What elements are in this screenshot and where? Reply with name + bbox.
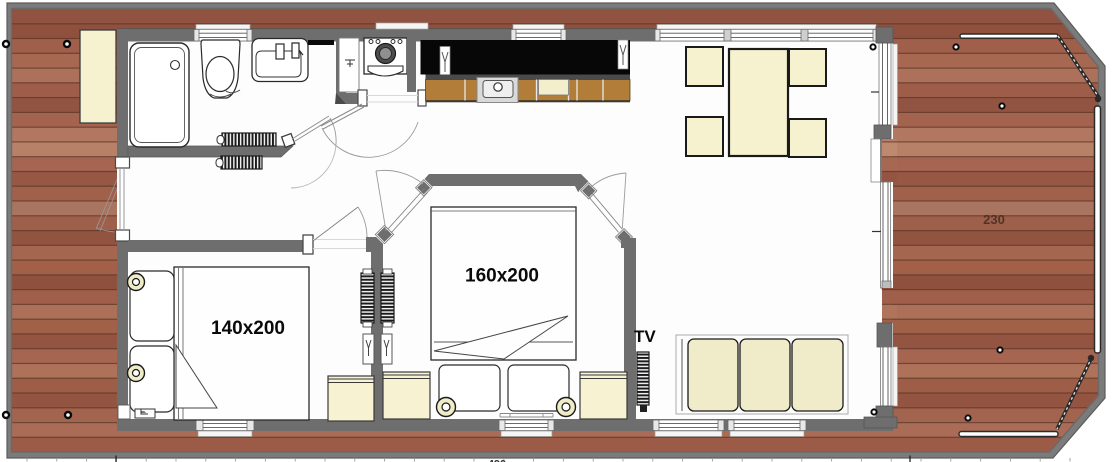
svg-text:TV: TV [634, 327, 656, 346]
svg-text:490: 490 [488, 459, 506, 462]
svg-text:140x200: 140x200 [211, 318, 285, 339]
svg-text:230: 230 [983, 212, 1005, 227]
svg-text:160x200: 160x200 [465, 266, 539, 287]
